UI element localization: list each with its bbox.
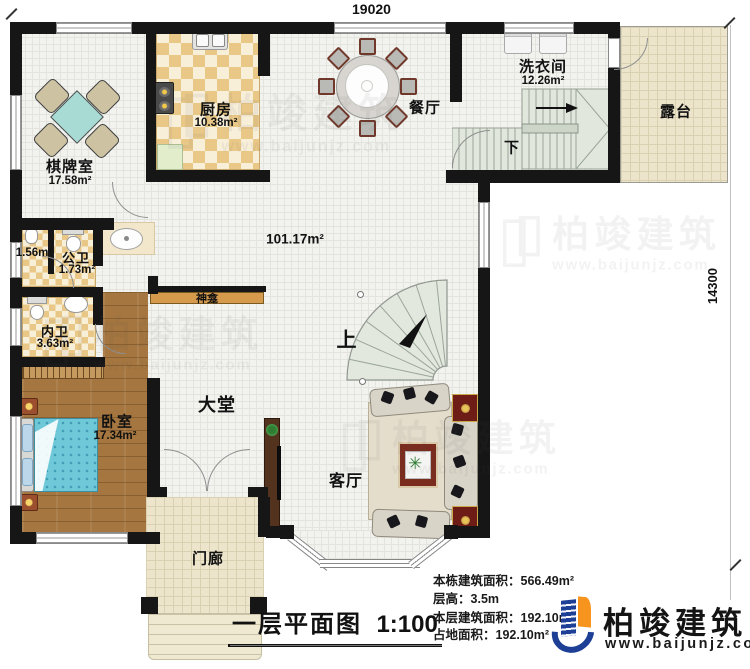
window [10,416,22,506]
wall-innerbath-bottom [10,357,105,367]
watermark-text: 柏竣建筑 [552,216,721,253]
window [36,532,128,544]
nightstand [20,398,38,415]
bed-mattress [34,418,98,492]
dining-chair [318,78,335,95]
room-area-kitchen: 10.38m² [195,117,238,129]
closet-sink [25,228,38,244]
wall-kitchen-bottom [146,170,270,182]
dimension-tick [5,8,17,20]
room-area-inner-bath: 3.63m² [37,338,73,350]
wall-hall-bottom-right [248,487,268,497]
room-area-closet: 1.56m² [16,247,52,259]
plan-title-text: 一层平面图 [232,611,362,638]
logo-building-icon [549,596,601,656]
wardrobe-hatch [22,366,104,379]
kitchen-stove [154,82,174,114]
room-label-shrine: 神龛 [196,290,218,306]
sofa [372,509,451,540]
toilet-bowl [30,305,44,320]
room-label-porch: 门廊 [192,548,224,569]
window [10,95,22,170]
dining-chair [359,38,376,55]
room-area-game-room: 17.58m² [49,175,92,187]
window [56,22,132,34]
stair-post [359,378,366,385]
wall-bath-divider [10,287,103,297]
watermark-url: www.baijunjz.com [552,256,721,274]
stair-label-up: 上 [337,324,358,353]
company-logo: 柏竣建筑 www.baijunjz.com [549,596,744,660]
room-area-public-bath: 1.73m² [59,264,95,276]
side-mat [452,394,478,422]
dimension-tick [729,559,741,571]
stat-footprint: 占地面积：192.10m² [433,624,549,643]
porch-column [141,597,158,614]
curved-stairs-up [343,268,483,388]
room-label-bedroom: 卧室 [101,411,133,432]
bay-window [320,559,420,568]
kitchen-cabinet [157,144,183,170]
wall-game-kitchen [146,28,156,182]
room-label-laundry: 洗衣间 [519,56,567,77]
window [478,202,490,268]
dimension-line-right [730,25,731,600]
stat-floor-height: 层高：3.5m [433,588,499,607]
window [10,308,22,346]
stair-label-down: 下 [504,137,520,158]
room-area-bedroom: 17.34m² [94,430,137,442]
wall-laundry-bottom [446,170,620,183]
bed-pillow [22,424,33,452]
logo-url: www.baijunjz.com [605,636,750,652]
window [504,22,574,34]
watermark-building-icon [503,216,542,269]
nightstand [20,494,38,511]
plant [266,424,278,436]
tv [277,446,281,500]
room-label-game-room: 棋牌室 [46,156,94,177]
floorplan-canvas: 柏竣建筑 www.baijunjz.com 柏竣建筑 www.baijunjz.… [0,0,750,669]
wall-bay-corner-left [280,525,294,539]
dimension-right: 14300 [705,268,720,304]
dining-chair [359,120,376,137]
watermark: 柏竣建筑 www.baijunjz.com [503,216,721,274]
wall-publicbath-right [93,222,103,266]
coffee-table: ✳ [398,442,438,488]
plan-title: 一层平面图 1:100 [228,604,442,647]
room-label-living: 客厅 [329,467,363,491]
wall-bedroom-right [147,378,160,497]
dining-chair [400,78,417,95]
toilet [27,296,47,304]
room-area-open: 101.17m² [266,232,324,247]
plan-title-underline2 [230,645,442,646]
room-label-hall: 大堂 [198,391,236,417]
pedestal-sink [64,295,88,313]
wall-innerbath-right [93,297,103,325]
room-area-laundry: 12.26m² [522,75,565,87]
wall-kitchen-right [258,28,270,76]
plan-scale: 1:100 [376,611,437,638]
room-label-terrace: 露台 [660,101,692,122]
room-label-dining: 餐厅 [409,97,441,118]
wall-laundry-left [450,22,462,102]
stat-building-area: 本栋建筑面积：566.49m² [433,570,574,589]
window [334,22,446,34]
stair-post [357,291,364,298]
dimension-top: 19020 [352,1,391,17]
bed-pillow [22,458,33,486]
